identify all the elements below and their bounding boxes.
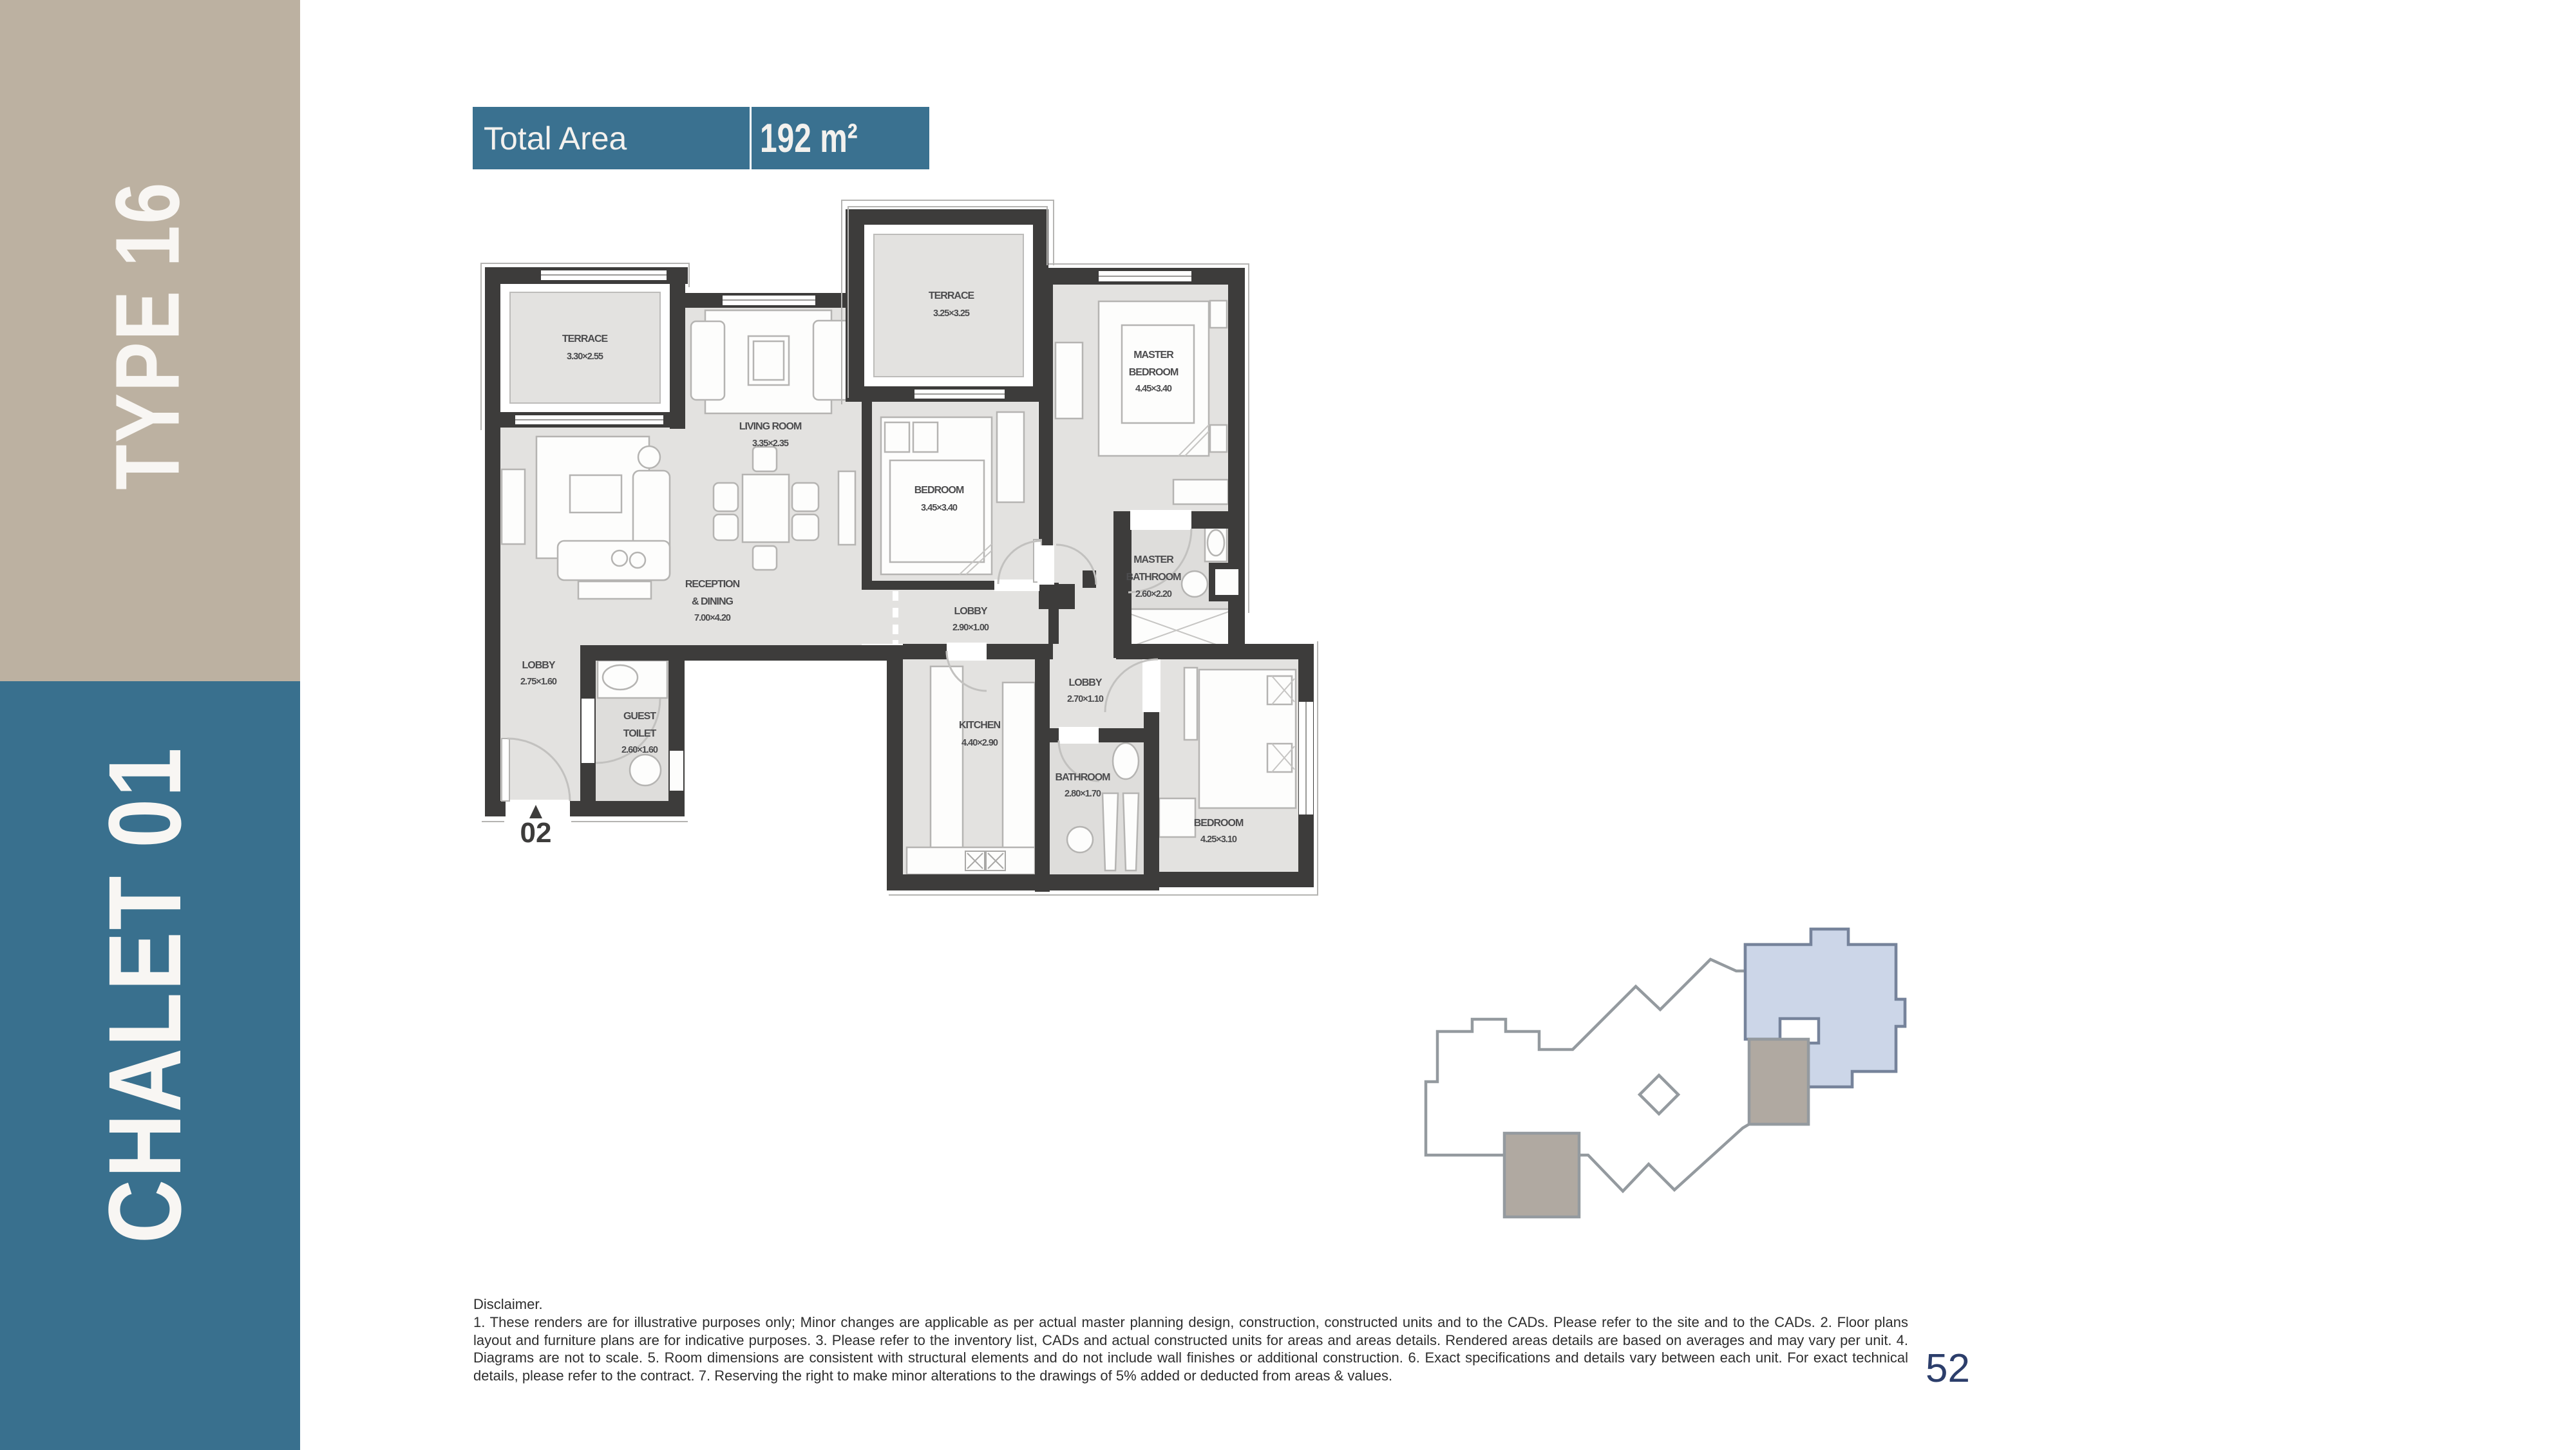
svg-text:2.60×1.60: 2.60×1.60 [621, 745, 658, 755]
svg-text:MASTER: MASTER [1133, 350, 1174, 361]
svg-text:2.60×2.20: 2.60×2.20 [1135, 589, 1172, 599]
svg-text:2.80×1.70: 2.80×1.70 [1065, 789, 1101, 799]
svg-text:TOILET: TOILET [623, 728, 657, 739]
svg-text:3.25×3.25: 3.25×3.25 [933, 308, 970, 319]
svg-text:02: 02 [520, 817, 552, 849]
svg-text:4.25×3.10: 4.25×3.10 [1200, 834, 1237, 845]
svg-text:4.45×3.40: 4.45×3.40 [1135, 384, 1172, 394]
svg-text:BEDROOM: BEDROOM [1194, 818, 1244, 829]
svg-text:RECEPTION: RECEPTION [685, 579, 740, 590]
svg-text:BEDROOM: BEDROOM [1129, 367, 1179, 378]
svg-text:& DINING: & DINING [692, 596, 734, 607]
svg-text:2.70×1.10: 2.70×1.10 [1067, 694, 1104, 704]
svg-text:MASTER: MASTER [1133, 554, 1174, 565]
svg-text:LOBBY: LOBBY [1069, 677, 1103, 688]
svg-text:GUEST: GUEST [623, 711, 656, 722]
svg-text:LIVING ROOM: LIVING ROOM [739, 421, 802, 432]
svg-text:BATHROOM: BATHROOM [1126, 572, 1181, 583]
svg-text:LOBBY: LOBBY [954, 606, 988, 617]
svg-text:2.75×1.60: 2.75×1.60 [520, 677, 557, 687]
svg-text:TERRACE: TERRACE [562, 334, 609, 344]
svg-text:2.90×1.00: 2.90×1.00 [952, 623, 989, 633]
svg-text:KITCHEN: KITCHEN [959, 720, 1001, 731]
svg-text:4.40×2.90: 4.40×2.90 [961, 738, 998, 748]
svg-text:7.00×4.20: 7.00×4.20 [694, 613, 731, 623]
svg-text:LOBBY: LOBBY [522, 660, 556, 671]
svg-text:3.30×2.55: 3.30×2.55 [567, 352, 603, 362]
svg-text:3.45×3.40: 3.45×3.40 [921, 503, 958, 513]
svg-text:BATHROOM: BATHROOM [1055, 772, 1110, 783]
svg-text:3.35×2.35: 3.35×2.35 [752, 438, 789, 449]
svg-text:TERRACE: TERRACE [929, 290, 975, 301]
svg-text:BEDROOM: BEDROOM [914, 485, 964, 496]
